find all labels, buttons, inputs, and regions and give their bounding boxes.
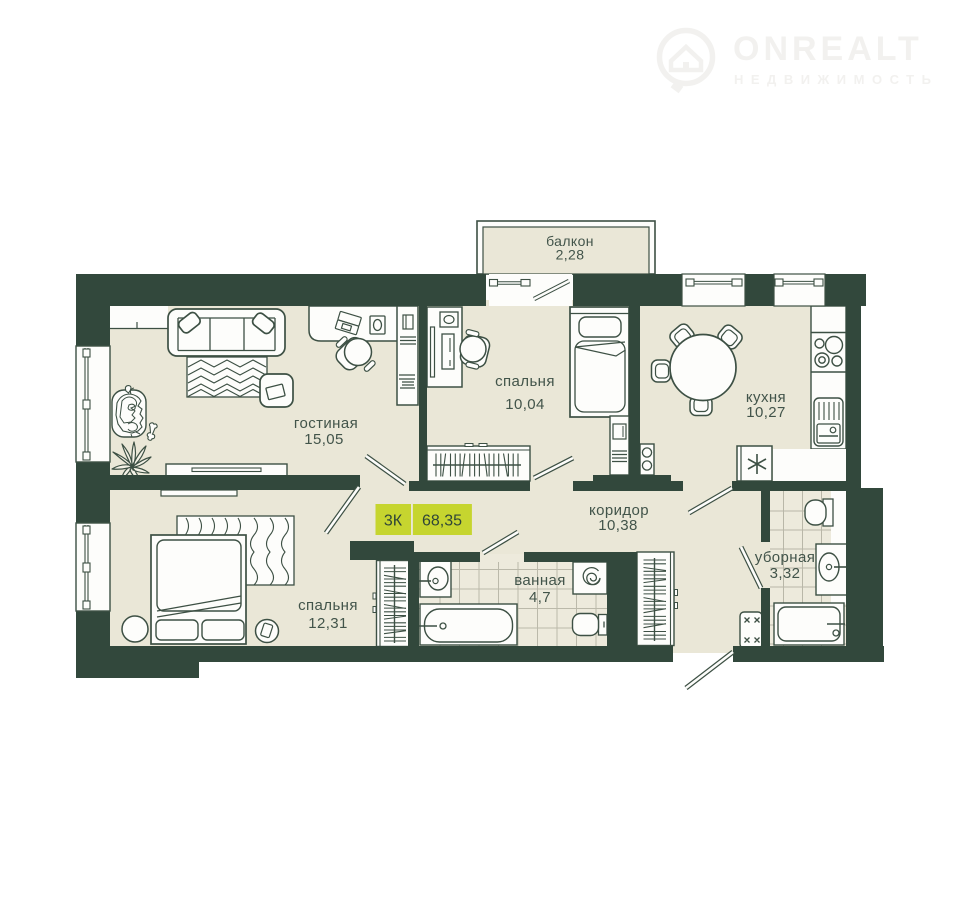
- svg-text:10,27: 10,27: [746, 404, 786, 421]
- svg-text:3К: 3К: [384, 513, 403, 530]
- svg-text:12,31: 12,31: [308, 615, 348, 632]
- svg-text:уборная: уборная: [755, 549, 816, 566]
- svg-text:2,28: 2,28: [556, 247, 585, 263]
- svg-text:спальня: спальня: [298, 597, 358, 614]
- svg-text:гостиная: гостиная: [294, 415, 358, 432]
- svg-text:НЕДВИЖИМОСТЬ: НЕДВИЖИМОСТЬ: [734, 72, 938, 87]
- svg-text:15,05: 15,05: [304, 431, 344, 448]
- svg-text:спальня: спальня: [495, 373, 555, 390]
- svg-text:ванная: ванная: [514, 572, 566, 589]
- svg-text:10,38: 10,38: [598, 517, 638, 534]
- svg-text:68,35: 68,35: [422, 513, 462, 530]
- svg-text:4,7: 4,7: [529, 589, 551, 606]
- svg-text:10,04: 10,04: [505, 396, 545, 413]
- svg-text:3,32: 3,32: [770, 565, 801, 582]
- svg-text:ONREALT: ONREALT: [733, 30, 923, 68]
